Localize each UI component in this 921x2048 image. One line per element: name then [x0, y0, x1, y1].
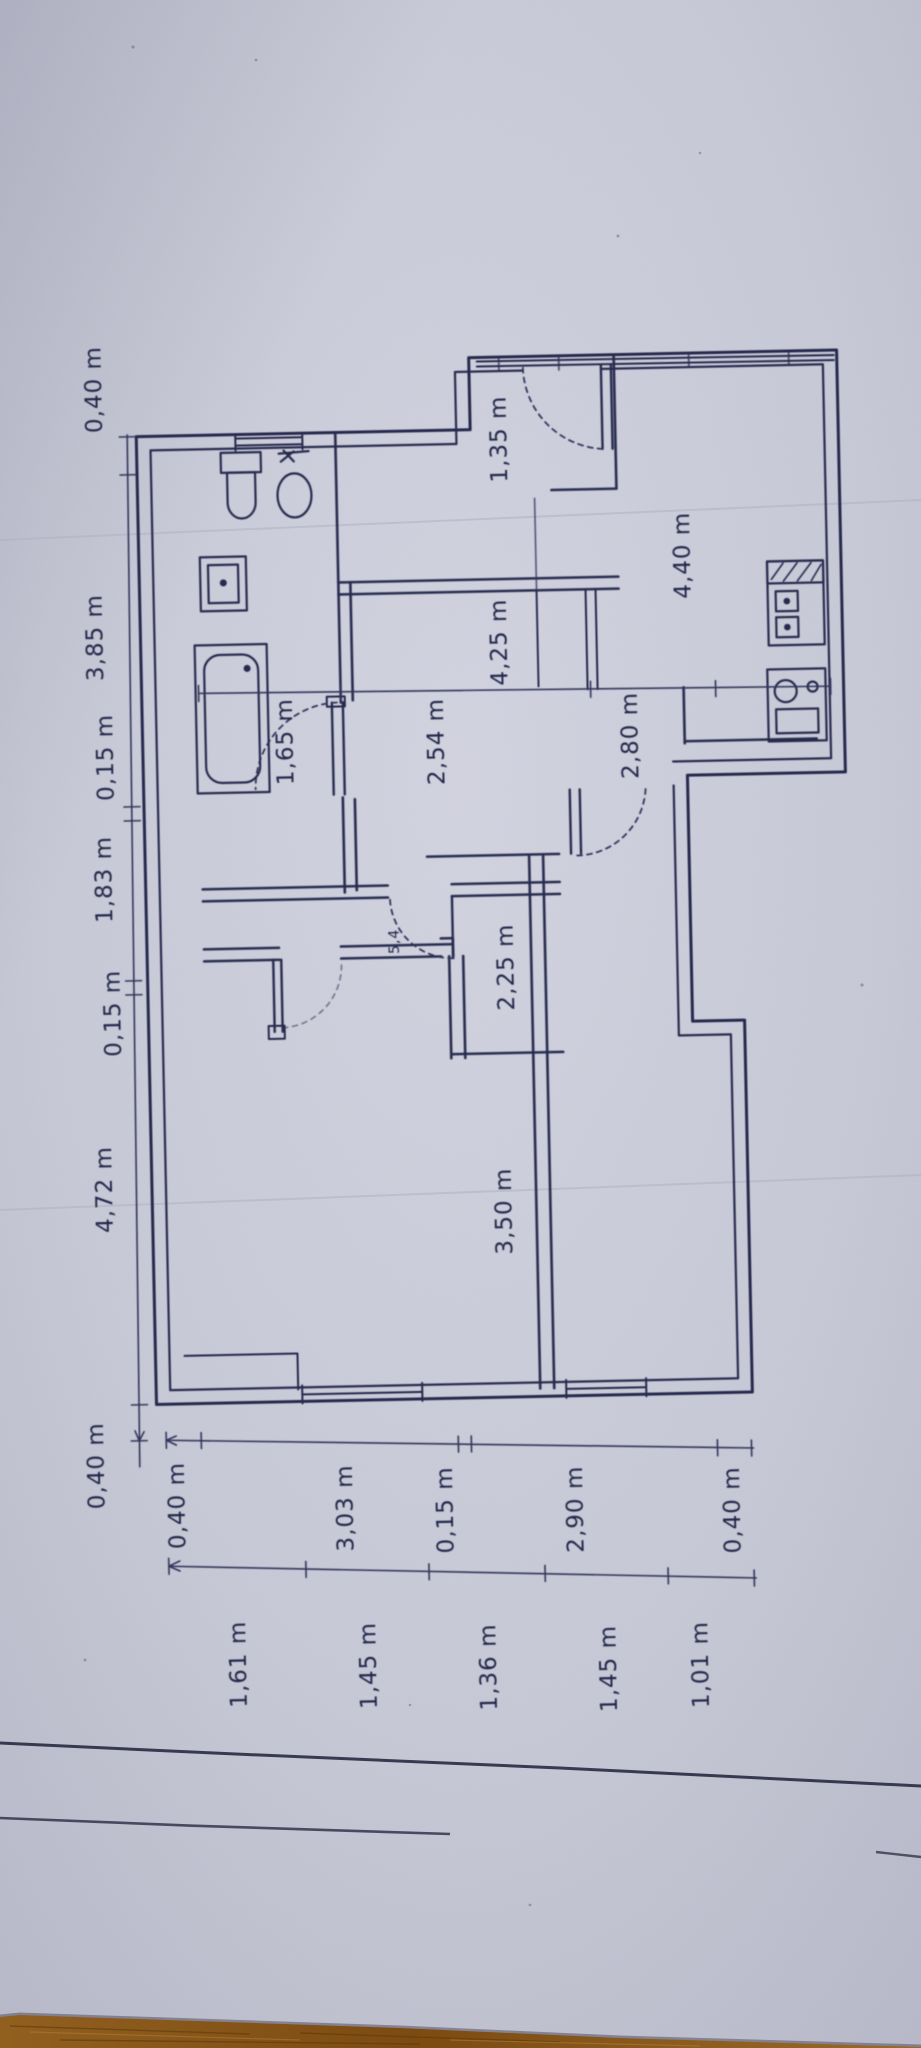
dim-bottom-inner-2: 1,36 m: [475, 1623, 503, 1710]
dim-left-0: 0,40 m: [80, 346, 108, 433]
paper-grain: [0, 0, 921, 2048]
floor-plan-photo: 0,40 m 3,85 m 0,15 m 1,83 m 0,15 m 4,72 …: [0, 0, 921, 2048]
label-2-54: 2,54 m: [423, 698, 451, 785]
label-2-25: 2,25 m: [493, 923, 521, 1010]
label-2-80: 2,80 m: [617, 692, 645, 779]
label-door-5-4: 5,4: [387, 929, 404, 955]
label-bath-1-65: 1,65 m: [272, 698, 300, 785]
dim-bottom-outer-1: 3,03 m: [332, 1464, 360, 1551]
dim-bottom-outer-0: 0,40 m: [164, 1462, 192, 1549]
dim-bottom-inner-1: 1,45 m: [355, 1622, 383, 1709]
dim-bottom-inner-0: 1,61 m: [225, 1621, 253, 1708]
dim-bottom-outer-3: 2,90 m: [562, 1465, 590, 1552]
label-3-50: 3,50 m: [491, 1167, 519, 1254]
photo-of-floor-plan: 0,40 m 3,85 m 0,15 m 1,83 m 0,15 m 4,72 …: [0, 0, 921, 2048]
dim-bottom-outer-4: 0,40 m: [719, 1466, 747, 1553]
dim-left-4: 0,15 m: [99, 970, 127, 1057]
dim-left-5: 4,72 m: [91, 1146, 119, 1233]
label-entry-1-35: 1,35 m: [485, 395, 513, 482]
window-bottom-right: [566, 1378, 646, 1398]
dim-left-3: 1,83 m: [91, 836, 119, 923]
dim-bottom-inner-4: 1,01 m: [687, 1621, 715, 1708]
dim-left-1: 3,85 m: [82, 594, 110, 681]
dim-bottom-inner-3: 1,45 m: [595, 1625, 623, 1712]
dim-bottom-outer-2: 0,15 m: [432, 1466, 460, 1553]
dim-left-2: 0,15 m: [92, 714, 120, 801]
label-kitchen-4-40: 4,40 m: [669, 512, 697, 599]
dim-left-6: 0,40 m: [83, 1422, 111, 1509]
label-4-25: 4,25 m: [486, 598, 514, 685]
